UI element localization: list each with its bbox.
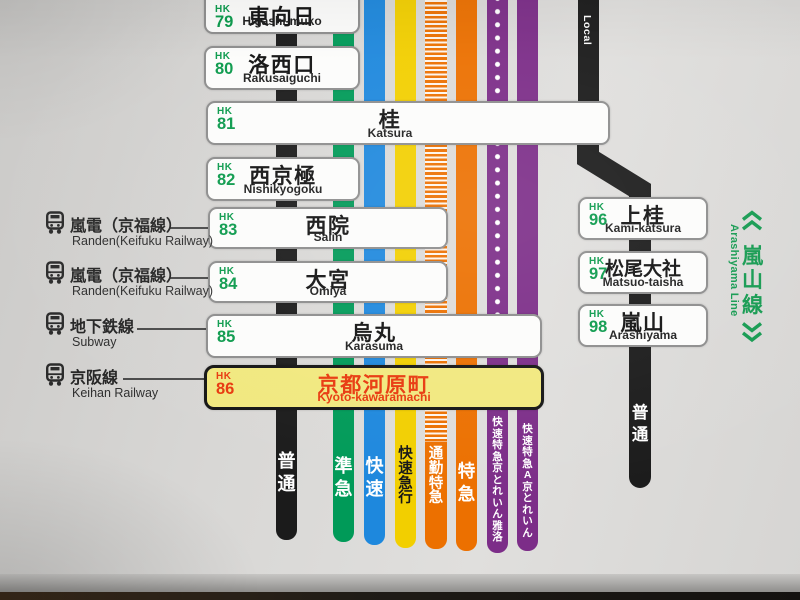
station-name-en: Katsura <box>208 126 572 140</box>
train-icon <box>44 261 66 285</box>
branch-service-label: 普通 <box>631 403 649 447</box>
station-name-en: Saiin <box>210 230 446 244</box>
transfer-line <box>137 328 207 330</box>
branch-line-name-en: Arashiyama Line <box>728 224 740 317</box>
transfer-label-en: Subway <box>72 335 116 349</box>
transfer-label-en: Randen(Keifuku Railway) <box>72 284 213 298</box>
station-name-en: Rakusaiguchi <box>206 71 358 85</box>
station-name-en: Arashiyama <box>580 328 706 342</box>
station-name-en: Nishikyogoku <box>208 182 358 196</box>
sign-bottom-edge <box>0 574 800 592</box>
station-box-hk81: HK 81 桂 Katsura <box>206 101 610 145</box>
station-name-en: Omiya <box>210 284 446 298</box>
transfer-label-en: Randen(Keifuku Railway) <box>72 234 213 248</box>
station-box-hk79: HK 79 東向日 Higashi-muko <box>204 0 360 34</box>
station-name-en: Karasuma <box>208 339 540 353</box>
station-box-hk96: HK 96 上桂 Kami-katsura <box>578 197 708 240</box>
train-icon <box>44 211 66 235</box>
station-name-en: Matsuo-taisha <box>580 275 706 289</box>
transfer-line <box>123 378 205 380</box>
transfer-label-en: Keihan Railway <box>72 386 158 400</box>
station-box-hk83: HK 83 西院 Saiin <box>208 207 448 249</box>
station-box-hk80: HK 80 洛西口 Rakusaiguchi <box>204 46 360 90</box>
station-box-hk82: HK 82 西京極 Nishikyogoku <box>206 157 360 201</box>
station-box-hk85: HK 85 烏丸 Karasuma <box>206 314 542 358</box>
station-box-hk98: HK 98 嵐山 Arashiyama <box>578 304 708 347</box>
transfer-label-ja: 京阪線 <box>70 364 118 388</box>
chevron-up-icon <box>740 210 764 232</box>
photo-bottom-strip <box>0 592 800 600</box>
train-icon <box>44 363 66 387</box>
train-icon <box>44 312 66 336</box>
station-name-en: Higashi-muko <box>206 14 358 28</box>
chevron-down-icon <box>740 321 764 343</box>
station-box-hk86-highlighted: HK 86 京都河原町 Kyoto-kawaramachi <box>204 365 544 410</box>
transfer-label-ja: 嵐電（京福線） <box>70 262 182 286</box>
branch-line-name-ja: 嵐山線 <box>741 245 764 318</box>
station-box-hk97: HK 97 松尾大社 Matsuo-taisha <box>578 251 708 294</box>
route-map-sign: 普通 準急 快速 快速急行 通勤特急 特急 快速特急 京とれいん雅洛 快速特急A… <box>0 0 800 600</box>
station-name-en: Kami-katsura <box>580 221 706 235</box>
transfer-label-ja: 嵐電（京福線） <box>70 212 182 236</box>
transfer-label-ja: 地下鉄線 <box>70 313 134 337</box>
station-box-hk84: HK 84 大宮 Omiya <box>208 261 448 303</box>
station-name-en: Kyoto-kawaramachi <box>207 390 541 404</box>
